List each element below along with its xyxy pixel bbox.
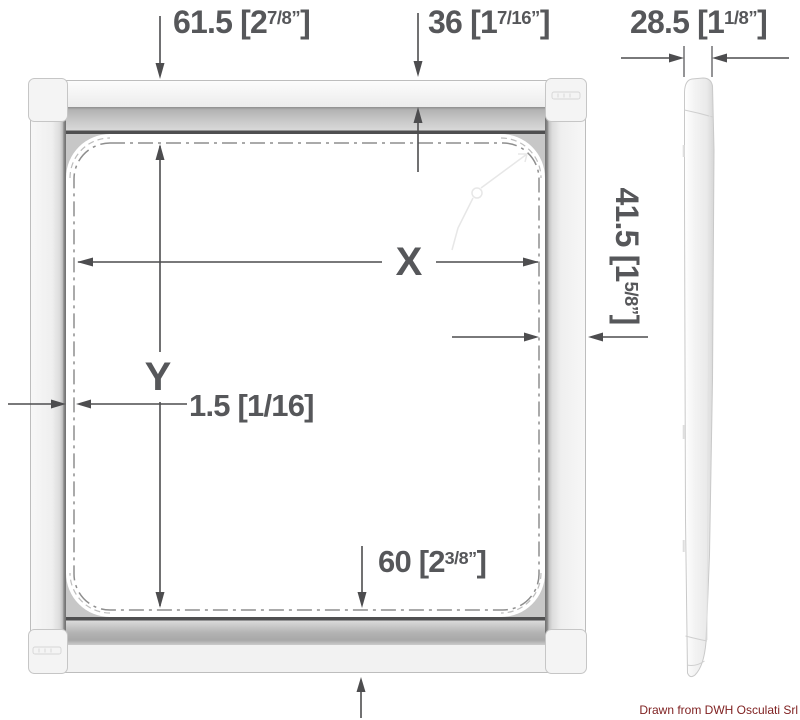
frame-right-face (545, 95, 585, 665)
top-housing-rail (31, 81, 585, 107)
frame-left-face (31, 95, 66, 665)
corner-cap-bottom-right (546, 630, 587, 674)
dim-arrow-top-left (156, 16, 165, 79)
dim-arrows-profile-depth (621, 46, 789, 77)
front-view-frame (29, 79, 587, 674)
bottom-handle-bar (66, 621, 545, 646)
dim-value: 1.5 [1/16] (189, 388, 314, 423)
dim-suffix: ] (757, 4, 767, 40)
dim-suffix: ] (300, 4, 310, 40)
dim-suffix: ] (477, 544, 487, 579)
dim-suffix: ] (609, 315, 645, 325)
dim-label-top-left: 61.5 [27/8”] (173, 6, 310, 38)
dim-value: 41.5 [1 (609, 188, 645, 282)
dim-label-cutout-height: Y (145, 357, 172, 397)
dim-label-top-right: 28.5 [11/8”] (630, 6, 767, 38)
drawing-svg (0, 0, 800, 720)
dim-suffix: ] (540, 4, 550, 40)
dim-label-right-side: 41.5 [15/8”] (611, 188, 643, 325)
dim-label-top-mid: 36 [17/16”] (428, 6, 550, 38)
side-profile-view (683, 78, 714, 677)
corner-cap-bottom-left (29, 630, 68, 674)
dim-value: 36 [1 (428, 4, 497, 40)
corner-cap-top-right (546, 79, 587, 122)
dim-label-cutout-width: X (396, 242, 423, 282)
dim-fraction: 5/8” (621, 282, 642, 315)
dim-label-flange-offset: 1.5 [1/16] (189, 390, 314, 421)
corner-cap-top-left (29, 79, 68, 122)
top-inner-edge-line (66, 131, 545, 135)
dim-arrow-bottom-up (357, 677, 366, 718)
bottom-inner-edge-line (66, 617, 545, 621)
dim-value: 61.5 [2 (173, 4, 267, 40)
technical-drawing-flyscreen-frame: 61.5 [27/8”] 36 [17/16”] 28.5 [11/8”] 41… (0, 0, 800, 720)
drawing-credit: Drawn from DWH Osculati Srl (639, 703, 798, 717)
blind-roller-bar (66, 107, 545, 132)
dim-fraction: 7/16” (497, 7, 540, 28)
dim-fraction: 7/8” (267, 7, 300, 28)
frame-opening (66, 134, 545, 617)
dim-label-bottom-rail: 60 [23/8”] (378, 546, 486, 577)
dim-fraction: 1/8” (724, 7, 757, 28)
dim-fraction: 3/8” (445, 548, 477, 568)
dim-value: 28.5 [1 (630, 4, 724, 40)
dim-value: 60 [2 (378, 544, 445, 579)
